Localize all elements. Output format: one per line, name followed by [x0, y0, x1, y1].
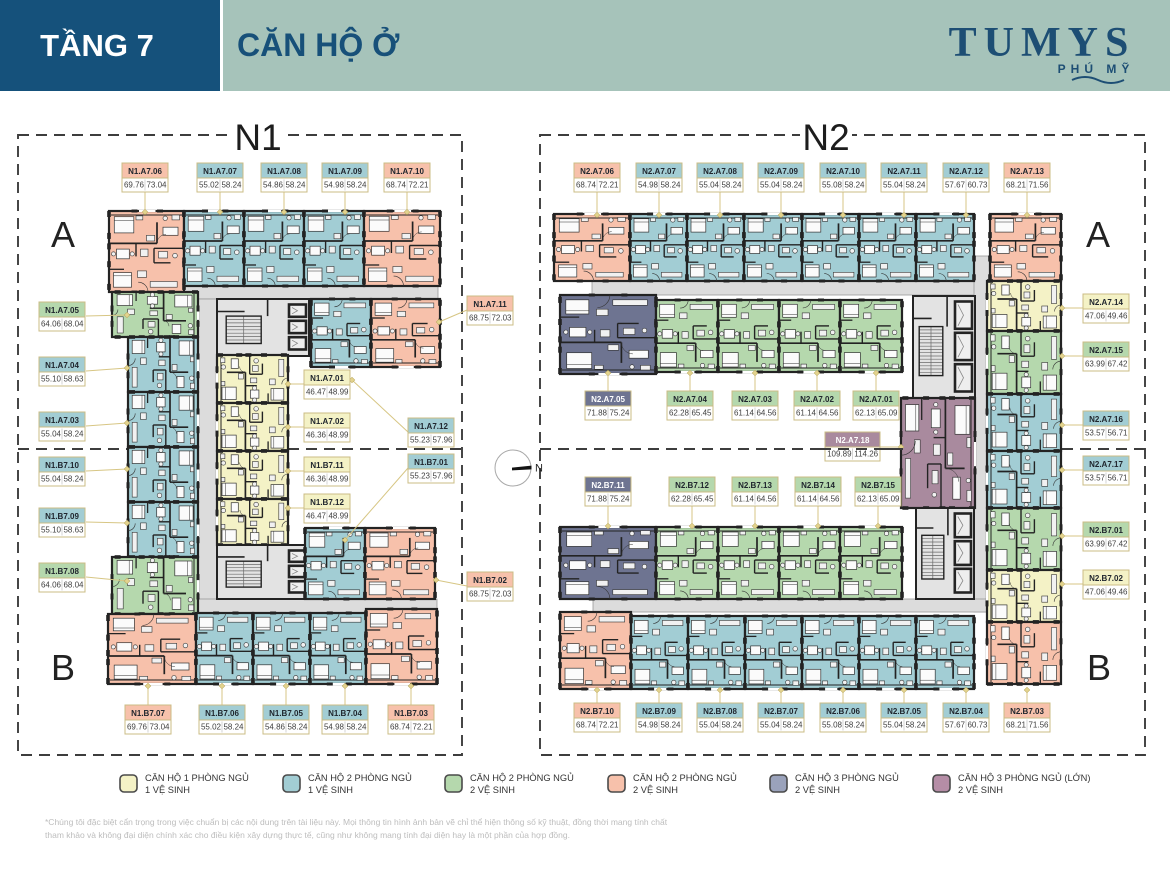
svg-text:61.14: 61.14	[734, 409, 755, 418]
svg-text:55.02: 55.02	[199, 181, 220, 190]
svg-text:CĂN HỘ 2 PHÒNG NGỦ: CĂN HỘ 2 PHÒNG NGỦ	[633, 772, 737, 783]
svg-text:58.24: 58.24	[660, 181, 681, 190]
svg-text:68.74: 68.74	[390, 723, 411, 732]
svg-text:72.21: 72.21	[408, 181, 429, 190]
svg-text:67.42: 67.42	[1107, 360, 1128, 369]
svg-text:58.24: 58.24	[905, 181, 926, 190]
svg-text:N2.A7.02: N2.A7.02	[800, 395, 834, 404]
svg-text:71.88: 71.88	[587, 409, 608, 418]
svg-text:72.21: 72.21	[412, 723, 433, 732]
svg-text:N1.B7.01: N1.B7.01	[414, 458, 448, 467]
svg-text:114.26: 114.26	[854, 450, 878, 459]
svg-text:N2.B7.03: N2.B7.03	[1010, 707, 1044, 716]
svg-text:N1.A7.04: N1.A7.04	[45, 361, 79, 370]
svg-text:73.04: 73.04	[146, 181, 167, 190]
svg-text:2 VỆ SINH: 2 VỆ SINH	[795, 785, 840, 795]
svg-text:69.76: 69.76	[127, 723, 148, 732]
svg-text:62.13: 62.13	[855, 409, 876, 418]
svg-text:55.04: 55.04	[760, 721, 781, 730]
svg-text:N1.B7.08: N1.B7.08	[45, 567, 79, 576]
svg-text:64.06: 64.06	[41, 581, 62, 590]
svg-text:N: N	[535, 463, 543, 475]
svg-text:N2.B7.11: N2.B7.11	[591, 481, 625, 490]
svg-text:N2.A7.04: N2.A7.04	[673, 395, 707, 404]
svg-text:61.14: 61.14	[797, 495, 818, 504]
svg-text:58.24: 58.24	[285, 181, 306, 190]
svg-text:N2.B7.05: N2.B7.05	[887, 707, 921, 716]
svg-text:60.73: 60.73	[967, 181, 988, 190]
svg-text:N2.A7.14: N2.A7.14	[1089, 298, 1123, 307]
svg-text:N2.A7.08: N2.A7.08	[703, 167, 737, 176]
svg-text:55.04: 55.04	[760, 181, 781, 190]
svg-text:N2.B7.07: N2.B7.07	[764, 707, 798, 716]
svg-text:48.99: 48.99	[328, 475, 349, 484]
svg-text:58.24: 58.24	[221, 181, 242, 190]
svg-text:49.46: 49.46	[1107, 588, 1128, 597]
svg-text:69.76: 69.76	[124, 181, 145, 190]
svg-text:58.24: 58.24	[63, 430, 84, 439]
svg-text:N1.A7.11: N1.A7.11	[473, 300, 507, 309]
svg-text:47.06: 47.06	[1085, 312, 1106, 321]
svg-text:1 VỆ SINH: 1 VỆ SINH	[308, 785, 353, 795]
svg-text:58.24: 58.24	[844, 181, 865, 190]
svg-text:55.10: 55.10	[41, 375, 62, 384]
svg-text:N1.A7.09: N1.A7.09	[328, 167, 362, 176]
svg-text:62.13: 62.13	[857, 495, 878, 504]
svg-text:58.24: 58.24	[660, 721, 681, 730]
svg-text:1 VỆ SINH: 1 VỆ SINH	[145, 785, 190, 795]
svg-text:CĂN HỘ 3 PHÒNG NGỦ (LỚN): CĂN HỘ 3 PHÒNG NGỦ (LỚN)	[958, 772, 1090, 783]
svg-text:TUMYS: TUMYS	[949, 20, 1136, 66]
svg-text:A: A	[51, 214, 75, 255]
svg-text:58.24: 58.24	[287, 723, 308, 732]
svg-text:55.10: 55.10	[41, 526, 62, 535]
svg-text:B: B	[51, 647, 75, 688]
svg-text:N1.A7.05: N1.A7.05	[45, 306, 79, 315]
svg-text:58.24: 58.24	[905, 721, 926, 730]
svg-text:57.67: 57.67	[945, 181, 966, 190]
svg-text:71.56: 71.56	[1028, 181, 1049, 190]
svg-text:N1.B7.04: N1.B7.04	[328, 709, 362, 718]
svg-text:A: A	[1086, 214, 1110, 255]
svg-text:*Chúng tôi đặc biệt cẩn trọng: *Chúng tôi đặc biệt cẩn trọng trong việc…	[45, 817, 668, 827]
svg-text:N1.A7.03: N1.A7.03	[45, 416, 79, 425]
svg-text:46.36: 46.36	[306, 475, 327, 484]
svg-text:N1.B7.03: N1.B7.03	[394, 709, 428, 718]
svg-text:64.06: 64.06	[41, 320, 62, 329]
svg-text:64.56: 64.56	[819, 495, 840, 504]
svg-text:N1.B7.12: N1.B7.12	[310, 498, 344, 507]
svg-text:46.36: 46.36	[306, 431, 327, 440]
svg-text:N2.A7.15: N2.A7.15	[1089, 346, 1123, 355]
svg-text:55.23: 55.23	[410, 472, 431, 481]
svg-text:N2.B7.08: N2.B7.08	[703, 707, 737, 716]
svg-text:N1: N1	[234, 117, 281, 158]
svg-text:N1.B7.09: N1.B7.09	[45, 512, 79, 521]
svg-text:61.14: 61.14	[734, 495, 755, 504]
svg-text:58.24: 58.24	[782, 181, 803, 190]
svg-text:N2.A7.18: N2.A7.18	[836, 436, 870, 445]
svg-text:53.57: 53.57	[1085, 474, 1106, 483]
svg-text:48.99: 48.99	[328, 431, 349, 440]
svg-text:54.86: 54.86	[263, 181, 284, 190]
svg-text:65.45: 65.45	[693, 495, 714, 504]
svg-text:75.24: 75.24	[609, 495, 630, 504]
svg-text:68.74: 68.74	[386, 181, 407, 190]
svg-text:56.71: 56.71	[1107, 429, 1128, 438]
svg-text:75.24: 75.24	[609, 409, 630, 418]
svg-text:65.09: 65.09	[879, 495, 900, 504]
svg-text:64.56: 64.56	[756, 495, 777, 504]
svg-text:61.14: 61.14	[796, 409, 817, 418]
svg-text:57.96: 57.96	[432, 436, 453, 445]
svg-text:57.96: 57.96	[432, 472, 453, 481]
svg-text:73.04: 73.04	[149, 723, 170, 732]
svg-text:N2: N2	[802, 117, 849, 158]
svg-text:55.04: 55.04	[41, 475, 62, 484]
svg-text:46.47: 46.47	[306, 388, 327, 397]
svg-text:N1.A7.07: N1.A7.07	[203, 167, 237, 176]
svg-text:109.89: 109.89	[827, 450, 852, 459]
svg-text:N2.A7.10: N2.A7.10	[826, 167, 860, 176]
svg-text:48.99: 48.99	[328, 512, 349, 521]
svg-text:64.56: 64.56	[756, 409, 777, 418]
svg-text:N1.B7.07: N1.B7.07	[131, 709, 165, 718]
svg-text:47.06: 47.06	[1085, 588, 1106, 597]
svg-text:71.56: 71.56	[1028, 721, 1049, 730]
svg-text:68.04: 68.04	[63, 320, 84, 329]
svg-text:65.45: 65.45	[691, 409, 712, 418]
svg-text:2 VỆ SINH: 2 VỆ SINH	[470, 785, 515, 795]
svg-text:N2.B7.04: N2.B7.04	[949, 707, 983, 716]
svg-text:N2.B7.15: N2.B7.15	[861, 481, 895, 490]
svg-text:55.04: 55.04	[699, 721, 720, 730]
svg-text:N1.A7.01: N1.A7.01	[310, 374, 344, 383]
svg-text:N2.B7.02: N2.B7.02	[1089, 574, 1123, 583]
svg-text:72.03: 72.03	[491, 590, 512, 599]
svg-text:58.24: 58.24	[721, 181, 742, 190]
svg-text:54.98: 54.98	[638, 181, 659, 190]
svg-text:58.24: 58.24	[721, 721, 742, 730]
svg-text:68.75: 68.75	[469, 590, 490, 599]
svg-text:2 VỆ SINH: 2 VỆ SINH	[633, 785, 678, 795]
svg-text:N2.A7.07: N2.A7.07	[642, 167, 676, 176]
svg-text:68.74: 68.74	[576, 181, 597, 190]
svg-text:68.04: 68.04	[63, 581, 84, 590]
svg-text:58.24: 58.24	[223, 723, 244, 732]
svg-text:58.63: 58.63	[63, 526, 84, 535]
svg-text:N1.A7.10: N1.A7.10	[390, 167, 424, 176]
svg-text:N2.A7.12: N2.A7.12	[949, 167, 983, 176]
svg-text:55.04: 55.04	[883, 181, 904, 190]
svg-text:54.98: 54.98	[638, 721, 659, 730]
svg-text:N2.B7.06: N2.B7.06	[826, 707, 860, 716]
svg-text:N1.B7.02: N1.B7.02	[473, 576, 507, 585]
svg-text:67.42: 67.42	[1107, 540, 1128, 549]
svg-text:N2.A7.06: N2.A7.06	[580, 167, 614, 176]
svg-text:N1.A7.02: N1.A7.02	[310, 417, 344, 426]
svg-text:58.24: 58.24	[346, 723, 367, 732]
svg-text:PHÚ MỸ: PHÚ MỸ	[1058, 61, 1135, 76]
svg-text:55.02: 55.02	[201, 723, 222, 732]
svg-text:65.09: 65.09	[877, 409, 898, 418]
svg-text:CĂN HỘ 2 PHÒNG NGỦ: CĂN HỘ 2 PHÒNG NGỦ	[308, 772, 412, 783]
svg-text:N2.B7.09: N2.B7.09	[642, 707, 676, 716]
svg-text:54.98: 54.98	[324, 181, 345, 190]
svg-text:N2.A7.16: N2.A7.16	[1089, 415, 1123, 424]
svg-text:N2.A7.03: N2.A7.03	[738, 395, 772, 404]
svg-text:N1.A7.08: N1.A7.08	[267, 167, 301, 176]
svg-text:N2.A7.17: N2.A7.17	[1089, 460, 1123, 469]
svg-text:N2.A7.13: N2.A7.13	[1010, 167, 1044, 176]
svg-text:56.71: 56.71	[1107, 474, 1128, 483]
svg-text:72.21: 72.21	[598, 721, 619, 730]
svg-text:N1.B7.11: N1.B7.11	[310, 461, 344, 470]
svg-text:N2.B7.14: N2.B7.14	[801, 481, 835, 490]
svg-text:55.04: 55.04	[699, 181, 720, 190]
svg-text:55.23: 55.23	[410, 436, 431, 445]
svg-text:N1.B7.06: N1.B7.06	[205, 709, 239, 718]
svg-text:N1.A7.06: N1.A7.06	[128, 167, 162, 176]
svg-text:N2.A7.01: N2.A7.01	[859, 395, 893, 404]
svg-text:N2.B7.10: N2.B7.10	[580, 707, 614, 716]
svg-text:46.47: 46.47	[306, 512, 327, 521]
svg-text:tham khảo và không đại diện ch: tham khảo và không đại diện chính xác ch…	[45, 830, 570, 840]
svg-text:72.03: 72.03	[491, 314, 512, 323]
svg-text:71.88: 71.88	[587, 495, 608, 504]
svg-text:N2.B7.01: N2.B7.01	[1089, 526, 1123, 535]
svg-text:68.75: 68.75	[469, 314, 490, 323]
svg-text:68.74: 68.74	[576, 721, 597, 730]
svg-text:72.21: 72.21	[598, 181, 619, 190]
svg-text:N2.B7.12: N2.B7.12	[675, 481, 709, 490]
svg-text:N1.B7.05: N1.B7.05	[269, 709, 303, 718]
svg-text:55.08: 55.08	[822, 721, 843, 730]
svg-text:CĂN HỘ Ở: CĂN HỘ Ở	[237, 27, 400, 63]
svg-text:CĂN HỘ 3 PHÒNG NGỦ: CĂN HỘ 3 PHÒNG NGỦ	[795, 772, 899, 783]
svg-text:CĂN HỘ 2 PHÒNG NGỦ: CĂN HỘ 2 PHÒNG NGỦ	[470, 772, 574, 783]
svg-text:55.08: 55.08	[822, 181, 843, 190]
svg-text:55.04: 55.04	[41, 430, 62, 439]
svg-text:62.28: 62.28	[671, 495, 692, 504]
svg-text:62.28: 62.28	[669, 409, 690, 418]
svg-text:2 VỆ SINH: 2 VỆ SINH	[958, 785, 1003, 795]
svg-text:48.99: 48.99	[328, 388, 349, 397]
svg-text:49.46: 49.46	[1107, 312, 1128, 321]
svg-text:68.21: 68.21	[1006, 181, 1027, 190]
svg-text:N2.A7.05: N2.A7.05	[591, 395, 625, 404]
svg-text:N2.A7.09: N2.A7.09	[764, 167, 798, 176]
svg-text:N1.B7.10: N1.B7.10	[45, 461, 79, 470]
svg-text:TẦNG 7: TẦNG 7	[40, 28, 154, 63]
svg-text:58.24: 58.24	[782, 721, 803, 730]
svg-text:N2.A7.11: N2.A7.11	[887, 167, 921, 176]
svg-text:54.98: 54.98	[324, 723, 345, 732]
svg-text:58.24: 58.24	[346, 181, 367, 190]
svg-text:58.24: 58.24	[844, 721, 865, 730]
svg-text:54.86: 54.86	[265, 723, 286, 732]
svg-text:CĂN HỘ 1 PHÒNG NGỦ: CĂN HỘ 1 PHÒNG NGỦ	[145, 772, 249, 783]
svg-text:58.63: 58.63	[63, 375, 84, 384]
svg-text:68.21: 68.21	[1006, 721, 1027, 730]
svg-text:55.04: 55.04	[883, 721, 904, 730]
svg-text:63.99: 63.99	[1085, 540, 1106, 549]
svg-text:58.24: 58.24	[63, 475, 84, 484]
svg-text:53.57: 53.57	[1085, 429, 1106, 438]
svg-text:63.99: 63.99	[1085, 360, 1106, 369]
svg-text:N1.A7.12: N1.A7.12	[414, 422, 448, 431]
svg-text:57.67: 57.67	[945, 721, 966, 730]
svg-text:60.73: 60.73	[967, 721, 988, 730]
svg-text:64.56: 64.56	[818, 409, 839, 418]
svg-text:B: B	[1087, 647, 1111, 688]
svg-text:N2.B7.13: N2.B7.13	[738, 481, 772, 490]
